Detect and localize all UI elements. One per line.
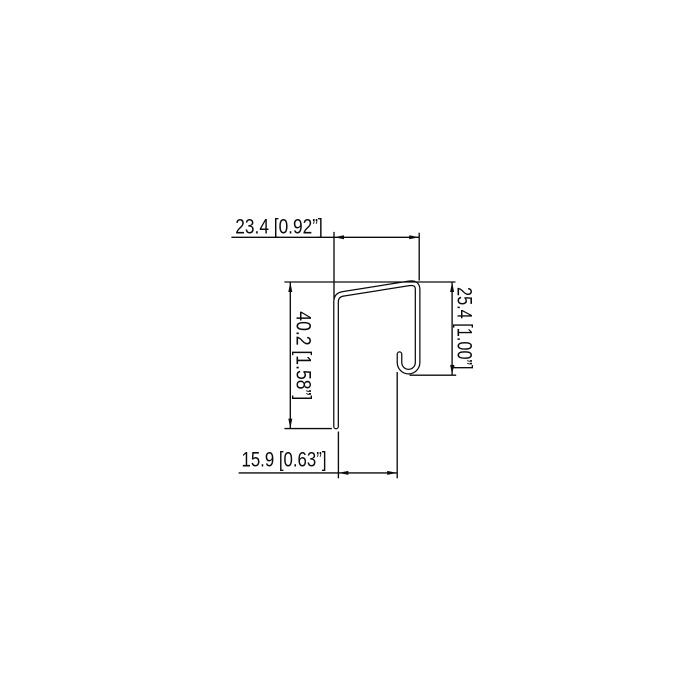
- svg-text:40.2 [1.58”]: 40.2 [1.58”]: [292, 311, 316, 400]
- svg-text:23.4 [0.92”]: 23.4 [0.92”]: [235, 215, 322, 239]
- svg-text:25.4 [1.00”]: 25.4 [1.00”]: [453, 287, 477, 370]
- svg-text:15.9 [0.63”]: 15.9 [0.63”]: [242, 448, 327, 472]
